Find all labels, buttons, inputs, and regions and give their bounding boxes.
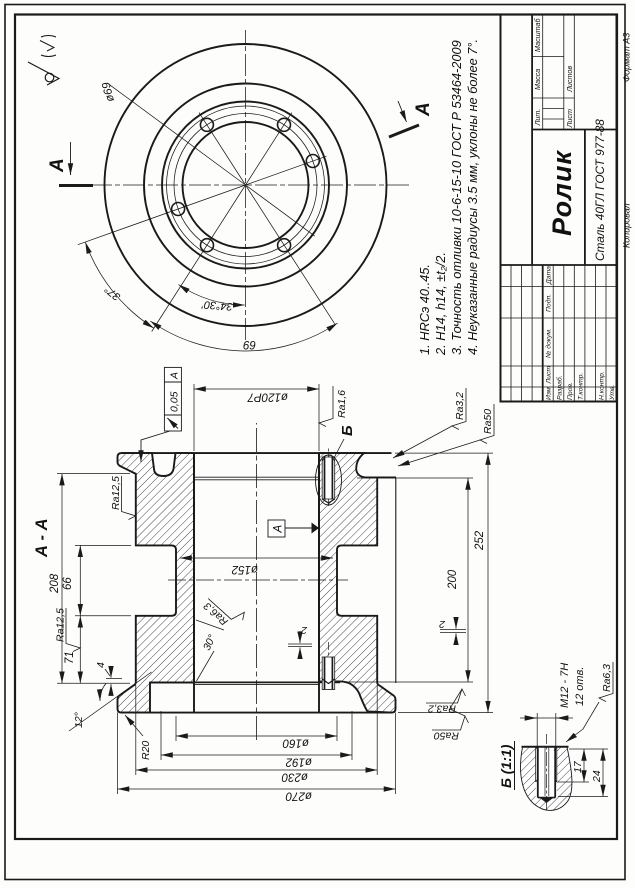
svg-text:Масса: Масса (533, 69, 542, 90)
svg-text:ø152: ø152 (231, 563, 258, 575)
svg-text:Утв.: Утв. (609, 384, 616, 401)
svg-text:Н.контр.: Н.контр. (599, 371, 606, 400)
svg-text:А: А (47, 158, 68, 173)
svg-text:А: А (169, 372, 181, 380)
svg-text:ø160: ø160 (282, 737, 309, 749)
svg-text:А: А (273, 525, 285, 534)
svg-text:ø230: ø230 (281, 771, 308, 783)
svg-text:4. Неуказанные радиусы 3.5 мм,: 4. Неуказанные радиусы 3.5 мм, уклоны не… (465, 39, 480, 355)
svg-text:ø270: ø270 (285, 790, 312, 802)
svg-text:Копировал: Копировал (622, 203, 632, 248)
svg-text:Сталь 40ГЛ ГОСТ 977-88: Сталь 40ГЛ ГОСТ 977-88 (593, 119, 607, 261)
svg-text:Ra50: Ra50 (482, 409, 494, 434)
svg-text:А - А: А - А (33, 519, 51, 559)
svg-text:Ролик: Ролик (547, 150, 577, 236)
svg-text:Лист: Лист (565, 109, 574, 129)
svg-text:Ra3,2: Ra3,2 (428, 703, 456, 715)
svg-text:71: 71 (64, 651, 76, 664)
svg-text:Дата: Дата (546, 266, 553, 285)
svg-text:М12 - 7Н: М12 - 7Н (559, 663, 571, 708)
svg-text:Формат А3: Формат А3 (622, 33, 632, 82)
svg-text:ø120Р7: ø120Р7 (247, 391, 288, 403)
svg-text:0,05: 0,05 (169, 391, 181, 412)
svg-text:Лист: Лист (546, 366, 553, 385)
svg-text:200: 200 (447, 569, 459, 590)
svg-text:Разраб.: Разраб. (555, 375, 563, 400)
svg-text:Лит.: Лит. (533, 109, 542, 127)
svg-text:252: 252 (474, 530, 486, 551)
svg-text:Пров.: Пров. (567, 382, 574, 400)
svg-text:Листов: Листов (565, 66, 574, 93)
svg-text:24: 24 (591, 770, 603, 783)
svg-text:17: 17 (572, 760, 584, 773)
svg-text:34°30': 34°30' (201, 298, 234, 312)
svg-text:Т.контр.: Т.контр. (577, 372, 584, 400)
svg-text:А: А (413, 102, 434, 117)
svg-text:Ra1,6: Ra1,6 (336, 390, 348, 418)
svg-text:Б: Б (339, 425, 356, 436)
svg-text:2: 2 (439, 618, 446, 630)
svg-text:66: 66 (62, 577, 74, 590)
svg-text:R20: R20 (140, 741, 152, 760)
svg-text:Изм.: Изм. (546, 385, 553, 400)
svg-text:Ra50: Ra50 (434, 730, 459, 742)
svg-text:Масштаб: Масштаб (533, 17, 542, 52)
svg-text:208: 208 (49, 573, 61, 594)
svg-text:1. HRCэ 40..45.: 1. HRCэ 40..45. (417, 264, 432, 355)
svg-text:Ra6,3: Ra6,3 (601, 664, 613, 692)
svg-text:12 отв.: 12 отв. (574, 667, 586, 706)
svg-text:12°: 12° (73, 712, 85, 728)
svg-text:Ra3,2: Ra3,2 (454, 392, 466, 420)
svg-text:Ra12,5: Ra12,5 (110, 476, 122, 510)
svg-text:2. H14, h14, ±t₂/2.: 2. H14, h14, ±t₂/2. (433, 252, 448, 356)
svg-text:Ra12,5: Ra12,5 (55, 608, 67, 642)
svg-text:Подп.: Подп. (545, 294, 553, 312)
svg-text:Б (1:1): Б (1:1) (498, 744, 514, 788)
svg-text:2: 2 (301, 624, 308, 636)
svg-text:3. Точность отливки 10-6-15-10: 3. Точность отливки 10-6-15-10 ГОСТ Р 53… (449, 40, 464, 355)
svg-text:№ докум.: № докум. (545, 328, 553, 358)
svg-text:ø192: ø192 (285, 756, 312, 768)
svg-text:4: 4 (95, 662, 107, 668)
svg-text:69: 69 (243, 338, 256, 350)
